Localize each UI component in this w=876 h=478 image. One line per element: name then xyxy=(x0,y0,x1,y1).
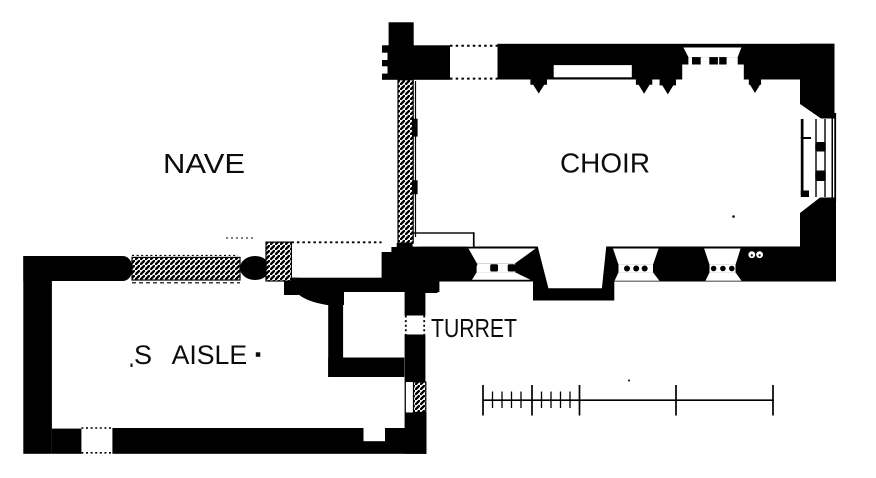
svg-text:TURRET: TURRET xyxy=(431,313,517,343)
svg-text:CHOIR: CHOIR xyxy=(560,148,650,179)
svg-text:AISLE: AISLE xyxy=(172,340,248,370)
svg-text:NAVE: NAVE xyxy=(163,148,245,179)
svg-text:S: S xyxy=(134,340,152,370)
